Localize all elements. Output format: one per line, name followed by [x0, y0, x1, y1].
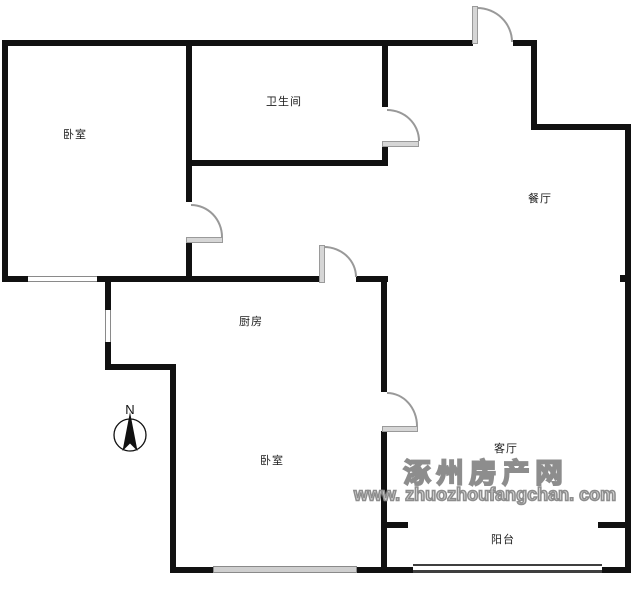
- wall-bathroom-east-b: [382, 145, 388, 166]
- wall-balcony-south-b: [602, 567, 631, 573]
- window-balcony: [413, 564, 602, 573]
- wall-balcony-stub-west: [381, 522, 408, 528]
- bedroom2-door-arc: [387, 392, 418, 426]
- bedroom2-label: 卧室: [260, 452, 284, 468]
- wall-bedroom1-east-a: [186, 40, 192, 202]
- wall-bedroom2-west: [170, 364, 176, 573]
- wall-bathroom-east-a: [382, 40, 388, 107]
- balcony-label: 阳台: [491, 531, 515, 547]
- wall-entry-east: [531, 40, 537, 130]
- bathroom-label: 卫生间: [266, 93, 302, 109]
- entrance-door-arc: [477, 7, 513, 42]
- wall-west: [2, 40, 8, 282]
- watermark-site-url: www. zhuozhoufangchan. com: [354, 485, 616, 506]
- wall-balcony-stub-east: [598, 522, 631, 528]
- bedroom1-label: 卧室: [63, 126, 87, 142]
- compass-needle: [123, 412, 138, 451]
- wall-east-nub: [620, 275, 625, 282]
- bedroom1-door-arc: [191, 204, 223, 237]
- window-bedroom2: [213, 566, 357, 573]
- floor-plan: 卧室 卫生间 餐厅 厨房 卧室 客厅 阳台 N 涿州房产网 www. zhuoz…: [0, 0, 638, 600]
- bedroom1-door-leaf: [186, 237, 223, 243]
- bathroom-door-leaf: [382, 141, 419, 147]
- wall-bedroom1-south-a: [2, 276, 28, 282]
- kitchen-door-arc: [324, 246, 357, 277]
- bathroom-door-arc: [387, 109, 420, 141]
- wall-top-left: [2, 40, 473, 46]
- north-compass-icon: N: [105, 398, 155, 458]
- wall-kitchen-north-a: [111, 276, 320, 282]
- wall-east: [625, 124, 631, 573]
- wall-bathroom-south: [186, 160, 388, 166]
- bedroom2-door-leaf: [382, 426, 418, 432]
- window-kitchen: [105, 310, 111, 342]
- wall-bedroom2-south-a: [170, 567, 213, 573]
- window-bedroom1: [28, 276, 97, 282]
- wall-dining-north: [531, 124, 631, 130]
- wall-kitchen-south: [105, 364, 176, 370]
- dining-room-label: 餐厅: [528, 190, 552, 206]
- wall-kitchen-east: [381, 276, 387, 392]
- kitchen-label: 厨房: [239, 313, 263, 329]
